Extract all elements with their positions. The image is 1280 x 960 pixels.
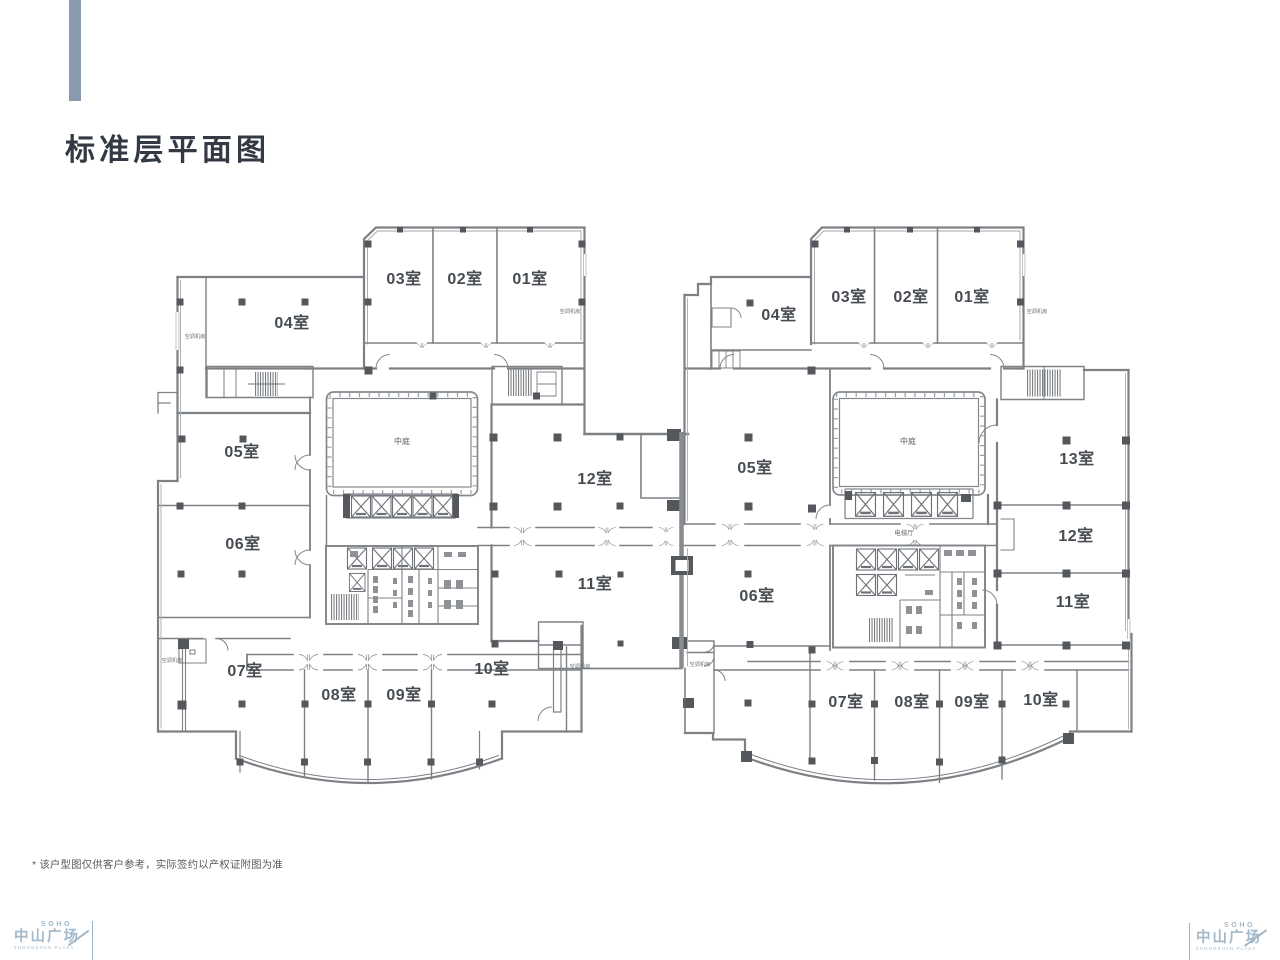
svg-text:05室: 05室 — [737, 458, 772, 477]
svg-text:07室: 07室 — [227, 661, 262, 680]
svg-text:02室: 02室 — [447, 269, 482, 288]
svg-text:03室: 03室 — [831, 287, 866, 306]
svg-text:空调机房: 空调机房 — [1027, 307, 1048, 315]
svg-text:06室: 06室 — [739, 586, 774, 605]
svg-text:11室: 11室 — [1056, 592, 1090, 611]
svg-text:10室: 10室 — [1023, 690, 1058, 709]
svg-text:13室: 13室 — [1059, 449, 1094, 468]
svg-text:06室: 06室 — [225, 534, 260, 553]
svg-text:04室: 04室 — [274, 313, 309, 332]
svg-text:12室: 12室 — [1058, 526, 1093, 545]
svg-text:09室: 09室 — [386, 685, 421, 704]
svg-text:01室: 01室 — [512, 269, 547, 288]
svg-text:09室: 09室 — [954, 692, 989, 711]
svg-text:04室: 04室 — [761, 305, 796, 324]
svg-text:空调机房: 空调机房 — [162, 656, 183, 664]
svg-text:电梯厅: 电梯厅 — [894, 528, 914, 537]
svg-text:空调机房: 空调机房 — [560, 307, 581, 315]
svg-text:中庭: 中庭 — [394, 436, 410, 446]
svg-text:空调机房: 空调机房 — [570, 662, 591, 670]
svg-text:03室: 03室 — [386, 269, 421, 288]
svg-text:01室: 01室 — [954, 287, 989, 306]
svg-text:02室: 02室 — [893, 287, 928, 306]
svg-text:07室: 07室 — [828, 692, 863, 711]
svg-text:11室: 11室 — [578, 574, 612, 593]
svg-text:12室: 12室 — [577, 469, 612, 488]
svg-text:05室: 05室 — [224, 442, 259, 461]
svg-text:08室: 08室 — [894, 692, 929, 711]
svg-text:08室: 08室 — [321, 685, 356, 704]
svg-text:中庭: 中庭 — [900, 436, 916, 446]
svg-text:空调机房: 空调机房 — [185, 332, 206, 340]
svg-text:空调机房: 空调机房 — [690, 660, 711, 668]
svg-text:10室: 10室 — [474, 659, 509, 678]
